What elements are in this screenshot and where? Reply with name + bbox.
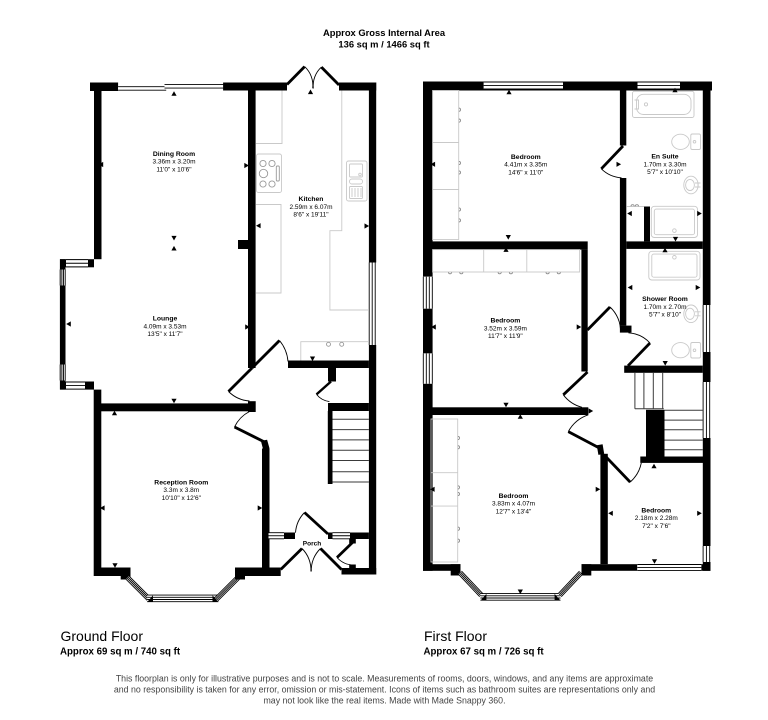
svg-text:1.70m x 2.70m: 1.70m x 2.70m — [644, 304, 687, 311]
svg-text:First Floor: First Floor — [424, 628, 487, 644]
svg-text:3.52m x 3.59m: 3.52m x 3.59m — [484, 325, 527, 332]
svg-text:may not look like the real ite: may not look like the real items. Made w… — [263, 696, 505, 706]
svg-text:3.3m x 3.8m: 3.3m x 3.8m — [163, 487, 199, 494]
svg-text:Porch: Porch — [303, 541, 321, 548]
svg-text:Ground Floor: Ground Floor — [61, 628, 144, 644]
svg-text:and no responsibility is taken: and no responsibility is taken for any e… — [114, 685, 655, 695]
svg-text:4.41m x 3.35m: 4.41m x 3.35m — [504, 162, 547, 169]
svg-text:En Suite: En Suite — [651, 154, 678, 161]
svg-text:This floorplan is only for ill: This floorplan is only for illustrative … — [116, 674, 653, 684]
svg-text:11'7" x 11'9": 11'7" x 11'9" — [488, 333, 523, 340]
svg-text:3.83m x 4.07m: 3.83m x 4.07m — [492, 501, 535, 508]
svg-text:10'10" x 12'6": 10'10" x 12'6" — [162, 495, 202, 502]
svg-text:Lounge: Lounge — [153, 316, 178, 323]
svg-text:Shower Room: Shower Room — [642, 296, 688, 303]
svg-text:14'6" x 11'0": 14'6" x 11'0" — [508, 169, 544, 176]
svg-text:Bedroom: Bedroom — [511, 154, 541, 161]
svg-text:Approx 67 sq m / 726 sq ft: Approx 67 sq m / 726 sq ft — [424, 647, 545, 658]
svg-text:7'2" x 7'6": 7'2" x 7'6" — [642, 523, 671, 530]
svg-text:3.36m x 3.20m: 3.36m x 3.20m — [153, 159, 196, 166]
svg-text:11'0" x 10'6": 11'0" x 10'6" — [156, 166, 192, 173]
svg-text:Bedroom: Bedroom — [641, 507, 671, 514]
svg-text:4.09m x 3.53m: 4.09m x 3.53m — [144, 323, 187, 330]
svg-text:2.59m x 6.07m: 2.59m x 6.07m — [290, 204, 333, 211]
svg-text:Dining Room: Dining Room — [153, 151, 195, 158]
svg-text:136 sq m / 1466 sq ft: 136 sq m / 1466 sq ft — [338, 39, 429, 50]
svg-text:Kitchen: Kitchen — [299, 196, 324, 203]
svg-text:8'6" x 19'11": 8'6" x 19'11" — [293, 212, 329, 219]
svg-text:Approx Gross Internal Area: Approx Gross Internal Area — [323, 27, 446, 38]
svg-text:2.18m x 2.28m: 2.18m x 2.28m — [635, 515, 678, 522]
svg-text:12'7" x 13'4": 12'7" x 13'4" — [496, 509, 532, 516]
svg-text:Reception Room: Reception Room — [154, 479, 208, 486]
svg-text:Bedroom: Bedroom — [499, 493, 529, 500]
svg-text:Approx 69 sq m / 740 sq ft: Approx 69 sq m / 740 sq ft — [60, 647, 181, 658]
svg-text:5'7" x 8'10": 5'7" x 8'10" — [649, 312, 682, 319]
svg-text:Bedroom: Bedroom — [490, 318, 520, 325]
svg-text:5'7" x 10'10": 5'7" x 10'10" — [647, 169, 683, 176]
svg-text:13'5" x 11'7": 13'5" x 11'7" — [147, 331, 183, 338]
svg-text:1.70m x 3.30m: 1.70m x 3.30m — [644, 161, 687, 168]
